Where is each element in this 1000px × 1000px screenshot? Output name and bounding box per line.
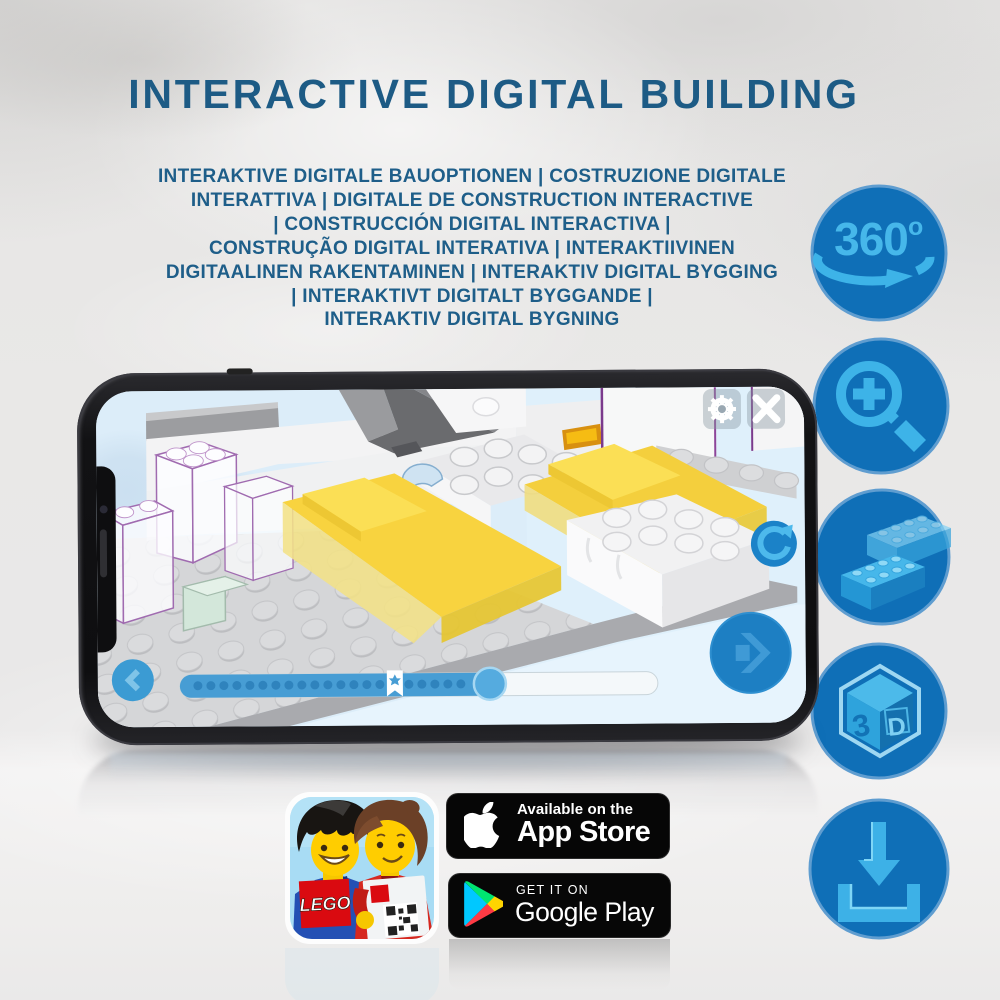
svg-text:360: 360	[834, 213, 908, 265]
svg-text:LEGO: LEGO	[299, 893, 351, 916]
svg-text:o: o	[908, 213, 923, 241]
svg-text:D: D	[886, 712, 907, 742]
